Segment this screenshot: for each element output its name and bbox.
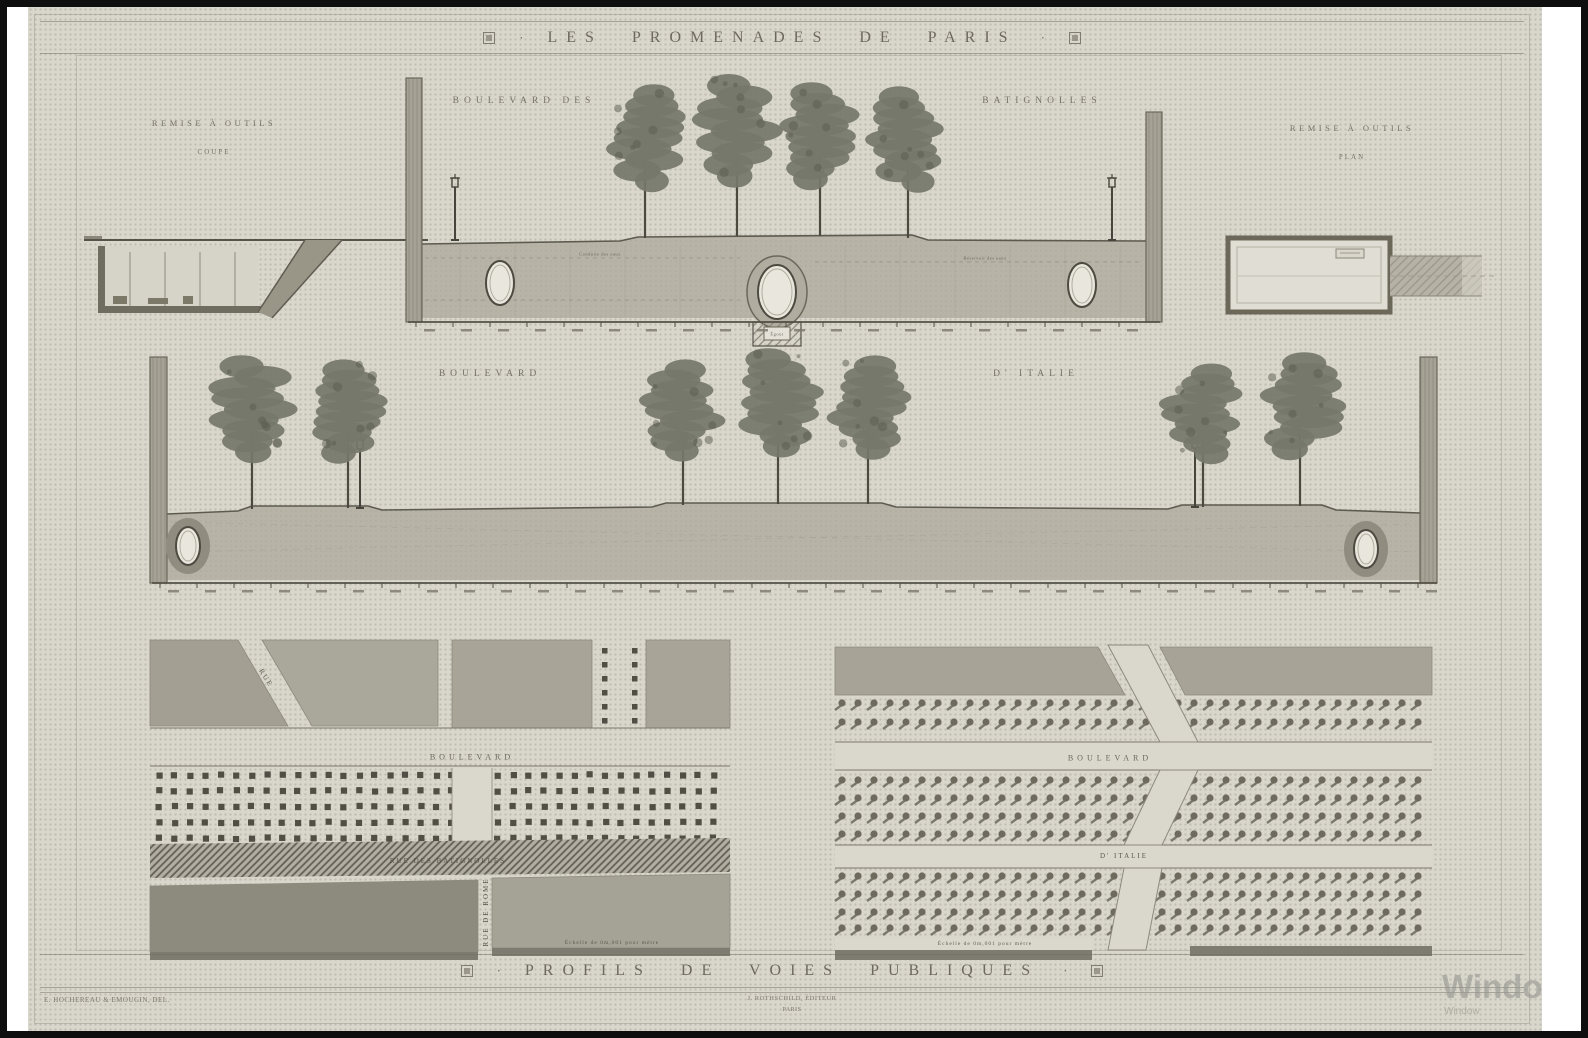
tree [606, 84, 686, 238]
profile-italie-drawing [150, 348, 1437, 592]
plate-footer-title: PROFILS DE VOIES PUBLIQUES [525, 962, 1039, 980]
plate-footer-band: · PROFILS DE VOIES PUBLIQUES · [40, 954, 1524, 988]
plan-batignolles-caption: Échelle de 0m,001 pour mètre [565, 940, 659, 946]
profile-annotation: Égout [770, 332, 783, 337]
plan-batignolles-street-label: RUE DES BATIGNOLLES [390, 857, 506, 865]
plan-batignolles-drawing [150, 640, 730, 960]
plan-italie-boulevard-label: BOULEVARD [1068, 754, 1152, 763]
profile-batignolles-label-left: BOULEVARD DES [453, 96, 596, 106]
plate-title-band: · LES PROMENADES DE PARIS · [40, 21, 1524, 54]
toolshed-coupe-title: REMISE À OUTILS [152, 118, 276, 128]
profile-italie-label-right: D' ITALIE [993, 369, 1079, 379]
toolshed-plan-subtitle: PLAN [1339, 153, 1365, 161]
profile-annotation: Conduite des eaux [579, 252, 621, 257]
credit-publisher-line2: PARIS [783, 1007, 802, 1013]
plan-batignolles-boulevard-label: BOULEVARD [430, 753, 514, 762]
tree [639, 359, 725, 505]
tree [738, 348, 823, 504]
profile-italie-label-left: BOULEVARD [439, 369, 541, 379]
title-bullet: · [519, 30, 523, 46]
tree [827, 355, 912, 504]
profile-annotation: Réservoir des eaux [963, 256, 1006, 261]
tree [1159, 364, 1243, 508]
plan-italie-street-label: D' ITALIE [1100, 852, 1148, 860]
plate-scan: · LES PROMENADES DE PARIS · · PROFILS DE… [0, 0, 1588, 1038]
toolshed-coupe-subtitle: COUPE [198, 148, 231, 156]
credit-delineator: E. HOCHEREAU & EMOUGIN, DEL. [44, 996, 170, 1004]
retaining-wall [1146, 112, 1162, 322]
ornament-icon [1069, 32, 1081, 44]
sewer-gallery [758, 265, 796, 319]
ornament-icon [461, 965, 473, 977]
retaining-wall [150, 357, 167, 583]
title-bullet: · [1063, 963, 1067, 979]
toolshed-section-drawing [84, 236, 428, 318]
plan-italie-caption: Échelle de 0m,001 pour mètre [938, 941, 1032, 947]
plate-title: LES PROMENADES DE PARIS [547, 29, 1016, 47]
title-bullet: · [497, 963, 501, 979]
tree [692, 74, 783, 236]
ornament-icon [483, 32, 495, 44]
tree [865, 86, 944, 238]
plan-italie-drawing [835, 645, 1432, 960]
credit-publisher-line1: J. ROTHSCHILD, ÉDITEUR [748, 995, 837, 1002]
footer-extra-rule [40, 992, 1524, 993]
plan-batignolles-side-street-label: RUE DE ROME [482, 877, 490, 946]
tree [1260, 352, 1346, 506]
retaining-wall [406, 78, 422, 322]
ornament-icon [1091, 965, 1103, 977]
profile-batignolles-label-right: BATIGNOLLES [982, 96, 1101, 106]
lamp-post [450, 174, 460, 240]
profile-batignolles-drawing [406, 74, 1162, 346]
toolshed-plan-title: REMISE À OUTILS [1290, 123, 1414, 133]
toolshed-plan-drawing [1228, 238, 1498, 312]
lamp-post [1107, 174, 1117, 240]
tree [208, 355, 297, 509]
tree [312, 359, 387, 508]
watermark-text: Windo [1442, 968, 1542, 1006]
tree [779, 82, 859, 236]
watermark-subtext: Window [1444, 1006, 1540, 1017]
title-bullet: · [1041, 30, 1045, 46]
retaining-wall [1420, 357, 1437, 583]
